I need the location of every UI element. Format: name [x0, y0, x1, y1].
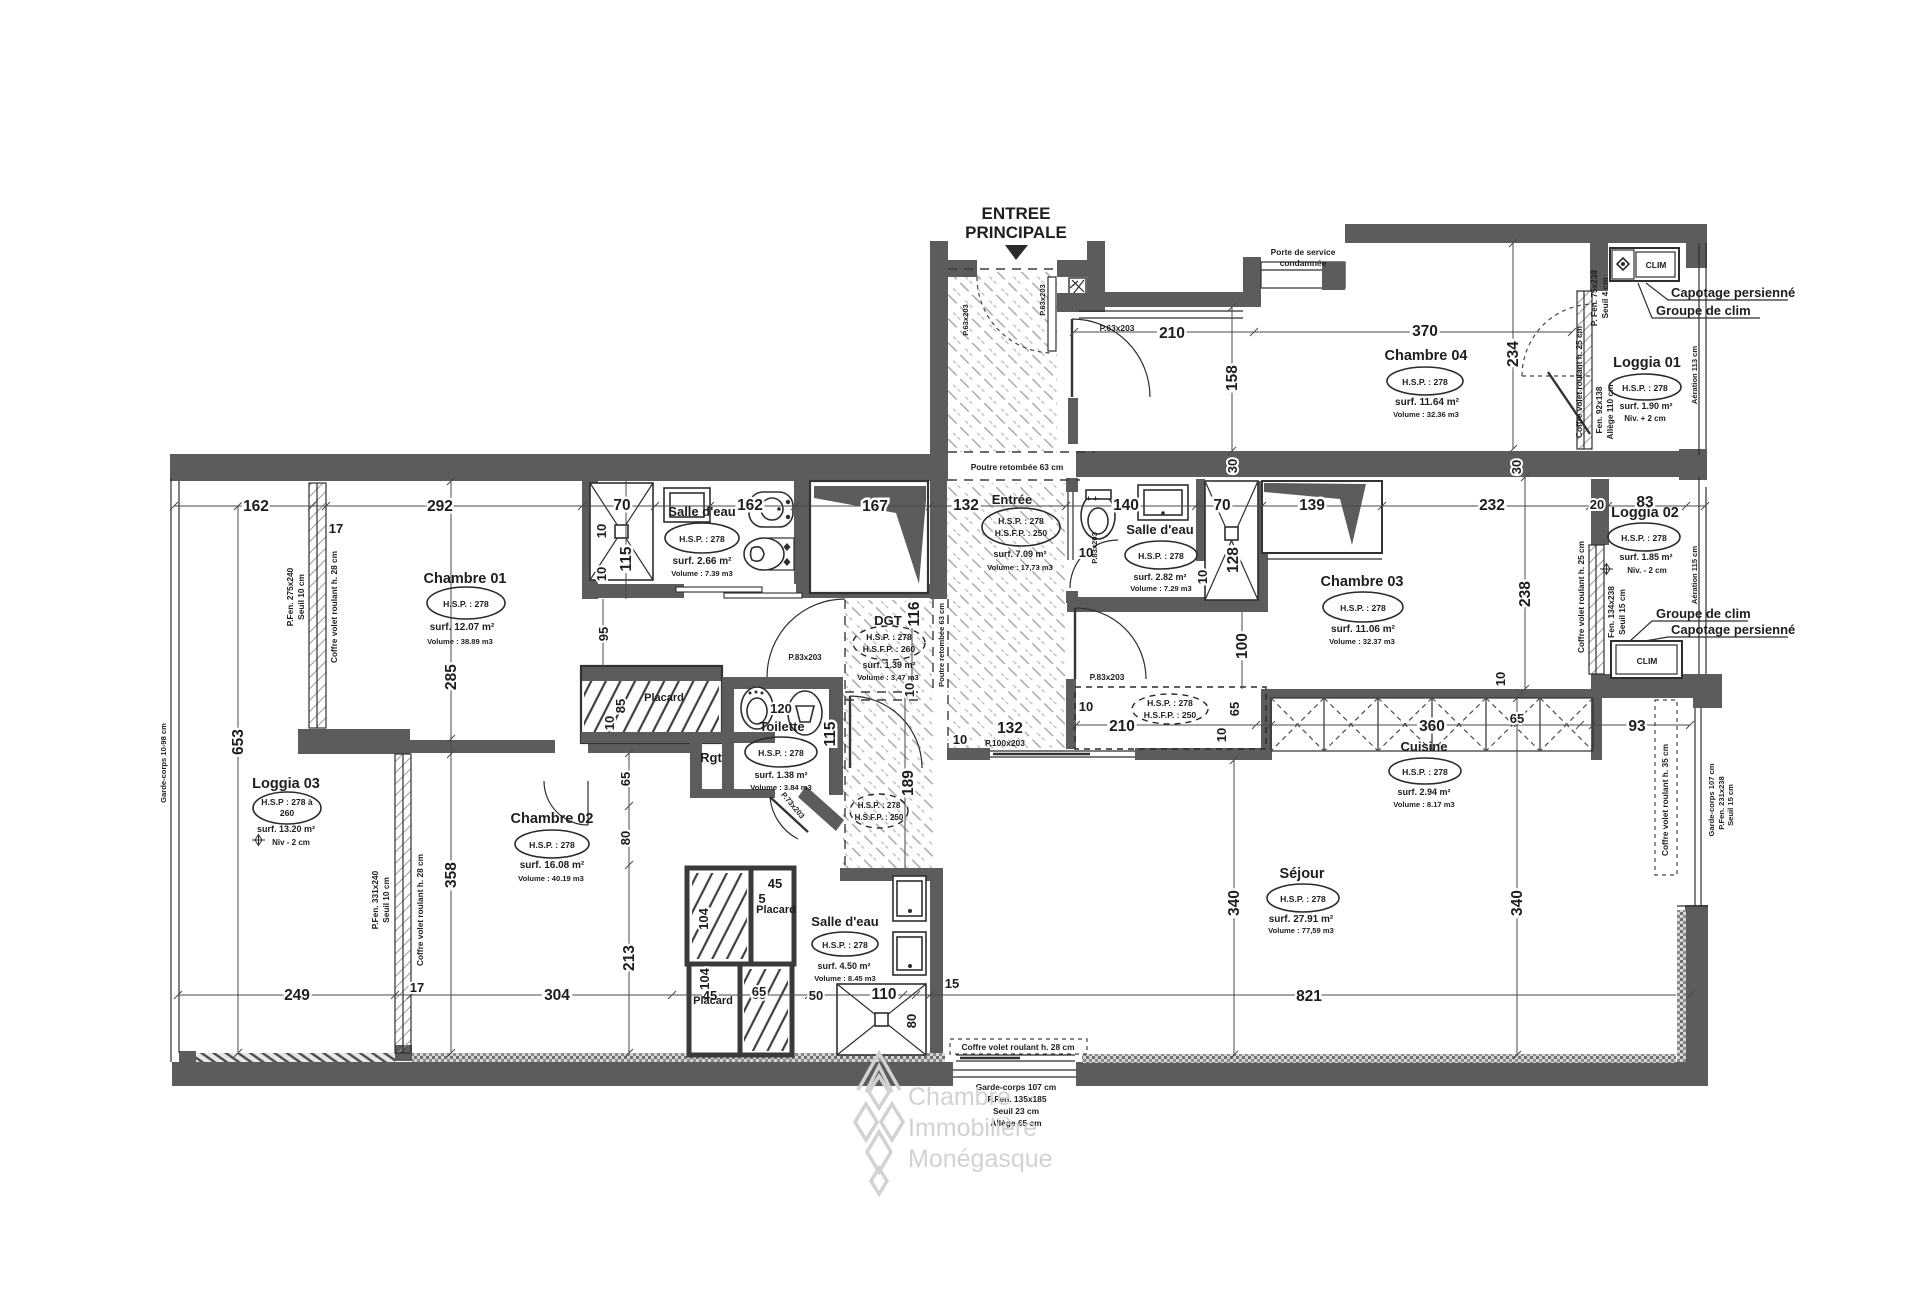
svg-text:116: 116	[906, 601, 923, 626]
svg-text:H.S.F.P. : 250: H.S.F.P. : 250	[1144, 710, 1197, 720]
svg-text:CLIM: CLIM	[1646, 260, 1667, 270]
svg-text:Groupe de clim: Groupe de clim	[1656, 303, 1751, 318]
svg-text:Capotage persienné: Capotage persienné	[1671, 622, 1795, 637]
svg-text:238: 238	[1517, 581, 1534, 607]
svg-text:surf. 4.50 m²: surf. 4.50 m²	[817, 961, 870, 971]
svg-text:Immobilière: Immobilière	[908, 1114, 1037, 1142]
svg-text:653: 653	[230, 729, 247, 755]
svg-text:H.S.P. : 278: H.S.P. : 278	[998, 516, 1044, 526]
svg-text:10: 10	[1493, 672, 1508, 686]
svg-text:surf. 11.06 m²: surf. 11.06 m²	[1331, 624, 1396, 635]
svg-text:surf. 12.07 m²: surf. 12.07 m²	[430, 622, 495, 633]
svg-text:Porte de service: Porte de service	[1271, 247, 1336, 257]
svg-text:167: 167	[862, 498, 888, 515]
svg-text:CLIM: CLIM	[1637, 656, 1658, 666]
svg-text:120: 120	[770, 701, 792, 716]
svg-text:Salle d'eau: Salle d'eau	[1126, 522, 1193, 537]
svg-text:10: 10	[594, 567, 609, 581]
svg-text:Volume : 40.19 m3: Volume : 40.19 m3	[518, 874, 584, 883]
svg-text:P.83x203: P.83x203	[1090, 532, 1099, 564]
svg-text:H.S.P. : 278: H.S.P. : 278	[443, 599, 489, 609]
svg-text:Coffre volet roulant h. 35 cm: Coffre volet roulant h. 35 cm	[1660, 744, 1670, 856]
svg-text:P. Fen. 75x238: P. Fen. 75x238	[1589, 270, 1599, 327]
svg-text:surf. 2.94 m²: surf. 2.94 m²	[1397, 787, 1450, 797]
svg-text:95: 95	[596, 627, 611, 641]
svg-text:Rgt: Rgt	[700, 750, 722, 765]
svg-text:Chambre 02: Chambre 02	[510, 811, 593, 827]
svg-text:surf. 2.66 m²: surf. 2.66 m²	[673, 556, 733, 567]
svg-text:Allège 110 cm: Allège 110 cm	[1605, 385, 1615, 440]
svg-text:115: 115	[822, 721, 839, 746]
svg-text:surf. 1.90 m²: surf. 1.90 m²	[1619, 401, 1672, 411]
svg-text:162: 162	[243, 498, 269, 515]
svg-text:P.83x203: P.83x203	[1090, 672, 1125, 682]
svg-text:Entrée: Entrée	[992, 492, 1032, 507]
svg-text:ENTREE: ENTREE	[982, 204, 1051, 223]
svg-text:162: 162	[737, 497, 763, 514]
svg-text:Coffre volet roulant h. 25 cm: Coffre volet roulant h. 25 cm	[1576, 541, 1586, 653]
svg-text:360: 360	[1419, 718, 1445, 735]
svg-text:15: 15	[945, 976, 959, 991]
svg-text:H.S.P. : 278: H.S.P. : 278	[1340, 603, 1386, 613]
svg-text:65: 65	[752, 984, 766, 999]
svg-text:45: 45	[768, 876, 782, 891]
svg-text:285: 285	[443, 664, 460, 690]
svg-text:DGT: DGT	[874, 613, 902, 628]
svg-text:17: 17	[329, 521, 343, 536]
svg-text:20: 20	[1590, 497, 1604, 512]
svg-text:H.S.P. : 278: H.S.P. : 278	[529, 840, 575, 850]
svg-text:Coffre volet roulant h. 28 cm: Coffre volet roulant h. 28 cm	[961, 1042, 1074, 1052]
svg-text:Placard: Placard	[756, 904, 796, 916]
svg-text:304: 304	[544, 987, 570, 1004]
svg-text:P.63x203: P.63x203	[1100, 323, 1135, 333]
svg-text:Volume : 17,73 m3: Volume : 17,73 m3	[987, 563, 1053, 572]
svg-text:Groupe de clim: Groupe de clim	[1656, 606, 1751, 621]
svg-text:Chambre 01: Chambre 01	[423, 571, 506, 587]
svg-text:Séjour: Séjour	[1279, 866, 1324, 882]
svg-text:H.S.F.P. : 250: H.S.F.P. : 250	[995, 528, 1048, 538]
svg-text:Seuil 15 cm: Seuil 15 cm	[1617, 589, 1627, 635]
svg-text:65: 65	[618, 772, 633, 786]
svg-text:H.S.P. : 278: H.S.P. : 278	[1280, 894, 1326, 904]
svg-text:Coffre volet roulant h. 25 cm: Coffre volet roulant h. 25 cm	[1574, 326, 1584, 438]
svg-text:Toilette: Toilette	[759, 719, 804, 734]
svg-text:Placard: Placard	[644, 692, 684, 704]
svg-text:232: 232	[1479, 497, 1505, 514]
svg-text:139: 139	[1299, 497, 1325, 514]
svg-text:10: 10	[953, 732, 967, 747]
svg-text:Chambre 03: Chambre 03	[1320, 574, 1403, 590]
svg-text:10: 10	[1079, 699, 1093, 714]
svg-text:surf. 11.64 m²: surf. 11.64 m²	[1395, 397, 1460, 408]
svg-text:292: 292	[427, 498, 453, 515]
svg-text:surf. 7.09 m²: surf. 7.09 m²	[993, 549, 1046, 559]
svg-text:85: 85	[613, 699, 628, 713]
svg-text:210: 210	[1109, 718, 1135, 735]
svg-text:Fen. 134x238: Fen. 134x238	[1606, 586, 1616, 638]
svg-text:condamnée: condamnée	[1280, 258, 1327, 268]
svg-text:surf. 13.20 m²: surf. 13.20 m²	[257, 824, 315, 834]
svg-text:234: 234	[1505, 341, 1522, 367]
svg-text:surf. 27.91 m²: surf. 27.91 m²	[1269, 914, 1334, 925]
svg-text:Poutre retombée 63 cm: Poutre retombée 63 cm	[937, 603, 946, 687]
svg-text:104: 104	[697, 967, 712, 989]
svg-text:Cuisine: Cuisine	[1401, 739, 1448, 754]
svg-text:80: 80	[618, 831, 633, 845]
svg-text:Fen. 92x138: Fen. 92x138	[1594, 386, 1604, 433]
svg-text:80: 80	[904, 1014, 919, 1028]
svg-text:Niv. - 2 cm: Niv. - 2 cm	[1627, 566, 1666, 575]
svg-text:Monégasque: Monégasque	[908, 1145, 1053, 1173]
svg-text:Poutre retombée 63 cm: Poutre retombée 63 cm	[971, 462, 1064, 472]
svg-text:H.S.P. : 278: H.S.P. : 278	[866, 632, 912, 642]
svg-text:115: 115	[618, 546, 635, 571]
svg-text:Seuil 10 cm: Seuil 10 cm	[296, 574, 306, 620]
svg-text:H.S.P. : 278: H.S.P. : 278	[1402, 377, 1448, 387]
svg-text:140: 140	[1113, 497, 1139, 514]
svg-text:P.63x203: P.63x203	[961, 304, 970, 336]
svg-text:Coffre volet roulant h. 28 cm: Coffre volet roulant h. 28 cm	[329, 551, 339, 663]
svg-text:Coffre volet roulant h. 28 cm: Coffre volet roulant h. 28 cm	[415, 854, 425, 966]
svg-text:H.S.P. : 278: H.S.P. : 278	[858, 801, 901, 810]
svg-text:210: 210	[1159, 325, 1185, 342]
svg-text:Loggia 01: Loggia 01	[1613, 355, 1681, 371]
svg-text:Volume : 7.29 m3: Volume : 7.29 m3	[1130, 584, 1191, 593]
svg-text:P.83x203: P.83x203	[788, 653, 822, 662]
svg-text:+ +: + +	[1086, 494, 1098, 503]
svg-text:93: 93	[1628, 718, 1646, 735]
svg-text:17: 17	[410, 980, 424, 995]
svg-text:132: 132	[953, 497, 979, 514]
svg-text:H.S.F.P. : 260: H.S.F.P. : 260	[863, 644, 916, 654]
svg-text:30: 30	[1509, 460, 1524, 474]
svg-text:H.S.P. : 278: H.S.P. : 278	[1402, 767, 1448, 777]
svg-text:249: 249	[284, 987, 310, 1004]
svg-text:Niv - 2 cm: Niv - 2 cm	[272, 838, 310, 847]
svg-text:Salle d'eau: Salle d'eau	[811, 914, 878, 929]
svg-text:30: 30	[1225, 459, 1240, 473]
svg-text:surf. 2.82 m²: surf. 2.82 m²	[1133, 572, 1186, 582]
svg-text:Loggia 02: Loggia 02	[1611, 505, 1679, 521]
svg-text:H.S.P. : 278: H.S.P. : 278	[758, 748, 804, 758]
svg-text:Volume : 8.45 m3: Volume : 8.45 m3	[814, 974, 875, 983]
svg-text:340: 340	[1509, 890, 1526, 916]
svg-text:104: 104	[696, 907, 711, 929]
svg-text:Niv. + 2 cm: Niv. + 2 cm	[1624, 414, 1665, 423]
svg-text:65: 65	[1227, 702, 1242, 716]
svg-text:132: 132	[997, 720, 1023, 737]
svg-text:10: 10	[1214, 728, 1229, 742]
svg-text:H.S.P. : 278: H.S.P. : 278	[1622, 383, 1668, 393]
svg-text:H.S.P : 278 à: H.S.P : 278 à	[261, 797, 313, 807]
svg-text:Volume : 77,59 m3: Volume : 77,59 m3	[1268, 926, 1334, 935]
svg-text:P.Fen. 231x238: P.Fen. 231x238	[1717, 776, 1726, 829]
svg-text:P.63x203: P.63x203	[1038, 284, 1047, 316]
svg-text:Seuil 4 cm: Seuil 4 cm	[1600, 277, 1610, 318]
svg-text:213: 213	[621, 945, 638, 971]
svg-text:10: 10	[1195, 570, 1210, 584]
svg-text:H.S.P. : 278: H.S.P. : 278	[1621, 533, 1667, 543]
svg-text:Loggia 03: Loggia 03	[252, 776, 320, 792]
svg-text:Garde-corps 10-98 cm: Garde-corps 10-98 cm	[159, 723, 168, 803]
svg-text:H.S.P. : 278: H.S.P. : 278	[679, 534, 725, 544]
svg-text:Seuil 15 cm: Seuil 15 cm	[1726, 784, 1735, 826]
svg-text:158: 158	[1224, 365, 1241, 391]
svg-text:surf. 1.39 m²: surf. 1.39 m²	[862, 660, 915, 670]
svg-text:65: 65	[1510, 711, 1524, 726]
svg-text:Salle d'eau: Salle d'eau	[668, 504, 735, 519]
svg-text:Garde-corps 107 cm: Garde-corps 107 cm	[1707, 763, 1716, 836]
svg-text:Placard: Placard	[693, 995, 733, 1007]
svg-text:Volume : 38.89 m3: Volume : 38.89 m3	[427, 637, 493, 646]
svg-text:358: 358	[443, 862, 460, 888]
svg-text:PRINCIPALE: PRINCIPALE	[965, 223, 1067, 242]
svg-text:100: 100	[1234, 633, 1251, 659]
svg-text:821: 821	[1296, 988, 1322, 1005]
svg-text:Volume : 32.36 m3: Volume : 32.36 m3	[1393, 410, 1459, 419]
svg-text:260: 260	[280, 808, 295, 818]
svg-text:H.S.P. : 278: H.S.P. : 278	[822, 940, 868, 950]
svg-text:H.S.P. : 278: H.S.P. : 278	[1138, 551, 1184, 561]
svg-text:surf. 16.08 m²: surf. 16.08 m²	[520, 860, 585, 871]
svg-text:70: 70	[1213, 497, 1230, 514]
svg-text:Chambre: Chambre	[908, 1083, 1011, 1111]
svg-text:Volume : 3,47 m3: Volume : 3,47 m3	[857, 673, 918, 682]
svg-text:P.Fen. 331x240: P.Fen. 331x240	[370, 870, 380, 929]
svg-text:surf. 1.85 m²: surf. 1.85 m²	[1619, 552, 1672, 562]
svg-text:surf. 1.38 m²: surf. 1.38 m²	[754, 770, 807, 780]
svg-text:10: 10	[902, 683, 917, 697]
svg-text:P.100x203: P.100x203	[985, 738, 1025, 748]
svg-text:Volume : 32.37 m3: Volume : 32.37 m3	[1329, 637, 1395, 646]
svg-text:Aération 115 cm: Aération 115 cm	[1690, 546, 1699, 604]
svg-text:370: 370	[1412, 323, 1438, 340]
svg-text:Aération 113 cm: Aération 113 cm	[1690, 346, 1699, 404]
svg-text:H.S.P. : 278: H.S.P. : 278	[1147, 698, 1193, 708]
svg-text:Capotage persienné: Capotage persienné	[1671, 285, 1795, 300]
svg-text:70: 70	[613, 497, 630, 514]
svg-text:10: 10	[602, 716, 617, 730]
svg-text:110: 110	[871, 986, 896, 1003]
svg-text:P.Fen. 275x240: P.Fen. 275x240	[285, 567, 295, 626]
svg-text:340: 340	[1226, 890, 1243, 916]
svg-text:H.S.F.P. : 250: H.S.F.P. : 250	[855, 813, 904, 822]
svg-text:189: 189	[900, 770, 917, 796]
svg-text:Volume : 8.17 m3: Volume : 8.17 m3	[1393, 800, 1454, 809]
svg-text:Chambre 04: Chambre 04	[1384, 348, 1467, 364]
svg-text:50: 50	[809, 988, 823, 1003]
svg-text:128: 128	[1225, 547, 1242, 573]
svg-text:Seuil 10 cm: Seuil 10 cm	[381, 877, 391, 923]
svg-text:Volume : 3.84 m3: Volume : 3.84 m3	[750, 783, 811, 792]
svg-text:Volume : 7.39 m3: Volume : 7.39 m3	[671, 569, 732, 578]
svg-text:10: 10	[594, 524, 609, 538]
